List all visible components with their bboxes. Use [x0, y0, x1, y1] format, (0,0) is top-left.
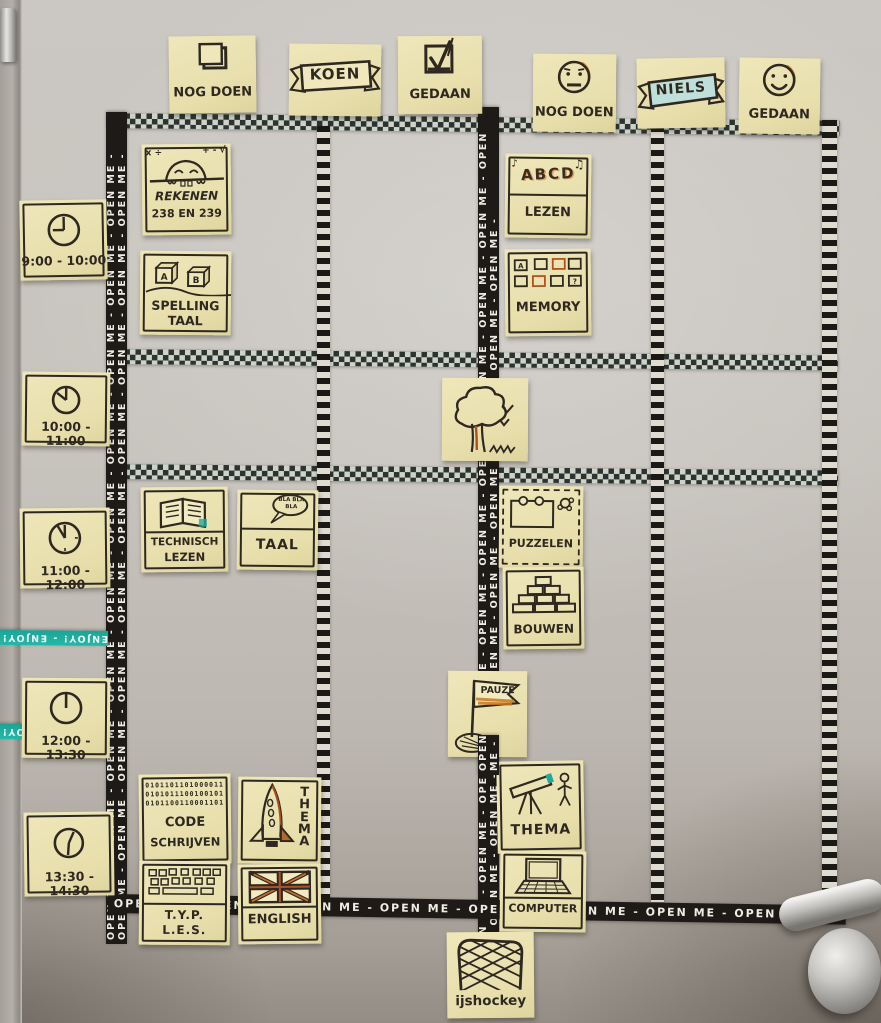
note-spelling-taal: A B SPELLING TAAL — [140, 251, 232, 336]
note-computer: COMPUTER — [500, 851, 587, 933]
tape-top-checkered — [108, 113, 840, 136]
time-label: 9:00 - 10:00 — [20, 253, 107, 268]
note-title: T.Y.P. — [139, 909, 230, 923]
time-note-4: 12:00 - 13:30 — [22, 678, 111, 759]
note-typles: T.Y.P. L.E.S. — [139, 861, 231, 946]
vertical-thema-label: THEMA — [298, 787, 312, 849]
note-title: PUZZELEN — [499, 538, 583, 551]
note-technisch-lezen: TECHNISCH LEZEN — [141, 487, 229, 573]
empty-checkbox-icon — [168, 35, 256, 84]
note-title: LEZEN — [505, 205, 591, 220]
bricks-icon — [503, 571, 584, 616]
tape-row3-checkered — [108, 464, 838, 485]
note-title: BOUWEN — [503, 623, 584, 637]
door-photo: ENJOY! - ENJOY! - ENJOY! - ENJOY! - ENJO… — [0, 0, 881, 1023]
smiley-face-icon — [739, 57, 821, 106]
note-puzzelen: PUZZELEN — [499, 486, 584, 569]
music-note-icon: ♪ — [511, 159, 518, 170]
checked-checkbox-icon — [398, 36, 482, 87]
clock-12-icon — [22, 682, 110, 731]
note-title: TECHNISCH — [141, 537, 228, 549]
time-label: 10:00 - 11:00 — [22, 420, 110, 448]
clock-9-icon — [19, 203, 107, 253]
binary-line: 0101100110001101 — [139, 799, 231, 807]
note-tree — [442, 378, 529, 462]
note-ijshockey: ijshockey — [447, 932, 535, 1019]
header-niels-done: GEDAAN — [738, 57, 820, 134]
tape-col4-striped — [651, 126, 664, 902]
tape-center-open-me: OPEN ME - OPEN ME - OPEN ME - OPEN ME - … — [478, 107, 499, 966]
note-code-schrijven: 0101101101000011 0101011100100101 010110… — [138, 773, 231, 864]
note-lezen: ABCD ♪ ♫ LEZEN — [504, 153, 591, 238]
note-pages: 238 EN 239 — [142, 208, 231, 221]
note-title: REKENEN — [142, 190, 231, 204]
laptop-icon — [500, 855, 586, 898]
header-koen-name: KOEN — [289, 44, 382, 117]
tape-center-open-me-patch: OPEN ME - OPEN ME - OPEN ME - OPEN ME - … — [478, 735, 499, 775]
puzzle-icon — [499, 491, 583, 532]
block-letter: B — [193, 276, 200, 286]
block-letter: A — [161, 273, 168, 283]
note-title: TAAL — [237, 538, 318, 554]
time-note-2: 10:00 - 11:00 — [22, 372, 111, 447]
note-thema-koen: THEMA — [238, 777, 322, 865]
clock-10-icon — [22, 376, 110, 419]
note-rekenen: x ÷ + - √ REKENEN 238 EN 239 — [142, 144, 232, 236]
door-hinge-icon — [0, 8, 16, 62]
time-label: 13:30 - 14:30 — [24, 869, 114, 898]
tape-row2-checkered — [108, 349, 838, 370]
letter-blocks-icon: A B — [140, 256, 231, 297]
note-thema-niels: THEMA — [496, 760, 585, 854]
time-note-5: 13:30 - 14:30 — [23, 811, 114, 896]
note-title: CODE — [139, 815, 231, 830]
card-letter: A — [518, 262, 524, 270]
uk-flag-icon — [238, 868, 321, 907]
card-letter: ? — [573, 278, 577, 286]
clock-11-icon — [20, 512, 110, 561]
tree-icon — [442, 378, 529, 462]
math-symbols: x ÷ — [146, 148, 166, 159]
note-english: ENGLISH — [238, 864, 322, 945]
door-handle-rose — [808, 928, 881, 1014]
note-title: MEMORY — [505, 301, 591, 316]
header-name-label: KOEN — [289, 65, 381, 84]
binary-line: 0101101101000011 — [139, 781, 231, 789]
note-title: ENGLISH — [238, 913, 321, 928]
binary-line: 0101011100100101 — [139, 790, 231, 798]
header-label: NOG DOEN — [169, 85, 256, 101]
telescope-icon — [496, 765, 584, 819]
bubble-text: BLA BLA BLA — [275, 497, 307, 512]
tape-right-striped — [822, 120, 837, 908]
time-label: 12:00 - 13:30 — [22, 734, 110, 762]
note-title: L.E.S. — [139, 924, 230, 938]
header-label: GEDAAN — [398, 88, 482, 103]
note-title: SCHRIJVEN — [139, 835, 231, 849]
time-note-3: 11:00 - 12:00 — [20, 508, 111, 589]
note-taal: BLA BLA BLA TAAL — [237, 490, 319, 571]
rocket-icon — [238, 777, 299, 865]
header-niels-name: NIELS — [636, 57, 725, 129]
note-bouwen: BOUWEN — [503, 567, 585, 650]
note-title: ijshockey — [447, 994, 534, 1010]
neutral-face-icon — [533, 54, 616, 105]
time-note-1: 9:00 - 10:00 — [19, 199, 107, 281]
math-symbols: + - √ — [192, 147, 226, 157]
open-book-icon — [141, 491, 228, 532]
note-memory: A ? MEMORY — [505, 249, 592, 337]
header-label: NOG DOEN — [533, 106, 616, 121]
hockey-net-icon — [447, 932, 535, 995]
note-title: SPELLING — [140, 299, 231, 314]
keyboard-icon — [139, 865, 230, 904]
clock-1330-icon — [23, 816, 114, 867]
note-title: COMPUTER — [500, 903, 586, 916]
note-title: TAAL — [140, 314, 231, 329]
note-title: PAUZE — [476, 686, 519, 697]
note-title: LEZEN — [141, 551, 228, 564]
memory-cards-icon: A ? — [505, 254, 591, 293]
music-note-icon: ♫ — [574, 158, 585, 171]
header-koen-todo: NOG DOEN — [168, 35, 256, 113]
time-label: 11:00 - 12:00 — [20, 564, 110, 592]
header-koen-done: GEDAAN — [398, 36, 483, 115]
header-niels-todo: NOG DOEN — [533, 54, 617, 133]
note-title: THEMA — [497, 822, 584, 839]
header-label: GEDAAN — [739, 107, 820, 122]
